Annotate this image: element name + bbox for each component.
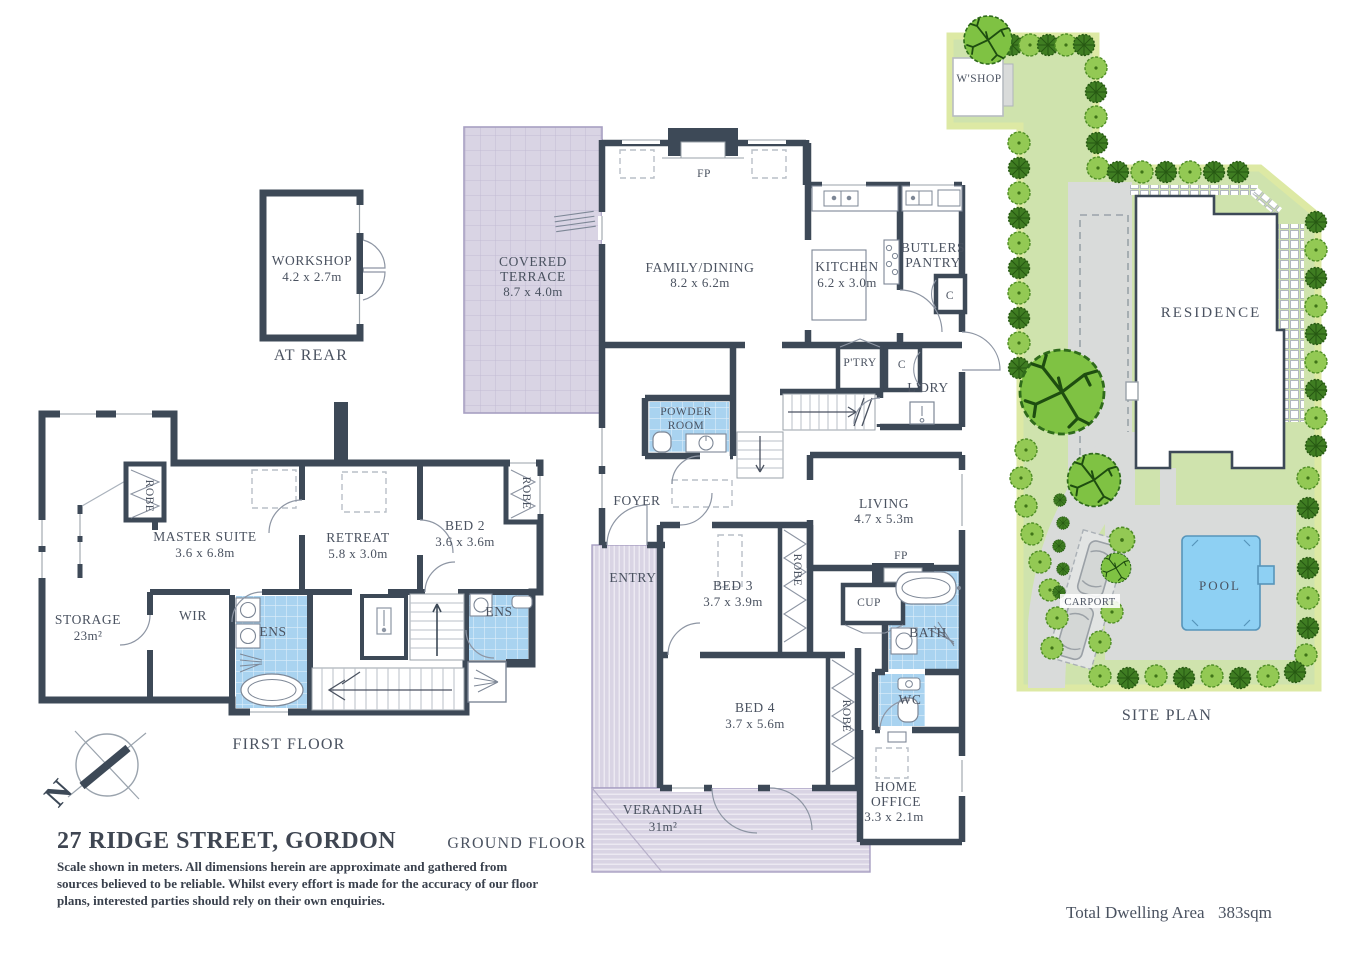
retreat-label: RETREAT <box>326 530 390 545</box>
powder-room-label: POWDER <box>660 406 712 418</box>
master-suite-dims: 3.6 x 6.8m <box>175 545 235 560</box>
big-tree-icon <box>1020 350 1104 434</box>
residence-label: RESIDENCE <box>1161 305 1262 321</box>
big-tree-icon <box>1068 454 1121 507</box>
floorplan-page: W'SHOP RESIDENCE POOL CARPORT SITE PLAN … <box>0 0 1358 960</box>
verandah-deck <box>592 788 870 872</box>
bed4-label: BED 4 <box>735 700 775 715</box>
butlers-fixtures <box>902 186 962 211</box>
disclaimer-line3: plans, interested parties should rely on… <box>57 893 385 908</box>
at-rear-label: AT REAR <box>274 347 348 364</box>
residence-outline <box>1136 196 1284 468</box>
entry-label: ENTRY <box>609 570 656 585</box>
disclaimer-line2: sources believed to be reliable. Whilst … <box>57 876 538 891</box>
first-floor-label: FIRST FLOOR <box>233 736 346 753</box>
master-suite-label: MASTER SUITE <box>153 529 257 544</box>
cupboard-label: C <box>946 290 954 302</box>
cup-label: CUP <box>857 597 881 609</box>
pool-label: POOL <box>1199 578 1241 593</box>
bed4-dims: 3.7 x 5.6m <box>725 716 785 731</box>
workshop-label: WORKSHOP <box>272 253 353 268</box>
workshop-plan: WORKSHOP 4.2 x 2.7m AT REAR <box>263 193 385 364</box>
workshop-dims: 4.2 x 2.7m <box>282 269 342 284</box>
cupboard-label: C <box>898 359 906 371</box>
site-front-path <box>1160 468 1176 508</box>
retreat-dims: 5.8 x 3.0m <box>328 546 388 561</box>
total-area-value: 383sqm <box>1218 903 1272 922</box>
wc-label: WC <box>899 692 922 707</box>
verandah-dims: 31m² <box>649 819 678 834</box>
covered-terrace-dims: 8.7 x 4.0m <box>503 284 563 299</box>
wshop-label: W'SHOP <box>956 73 1001 85</box>
storage-label: STORAGE <box>55 612 121 627</box>
compass: N <box>37 731 146 813</box>
kitchen-dims: 6.2 x 3.0m <box>817 275 877 290</box>
wir-label: WIR <box>179 608 207 623</box>
wall-stub <box>334 402 348 460</box>
home-office-dims: 3.3 x 2.1m <box>864 809 924 824</box>
stairs-upper-flight <box>410 594 464 660</box>
ground-floor-label: GROUND FLOOR <box>447 835 586 852</box>
powder-room-label2: ROOM <box>668 420 705 432</box>
page-title: 27 RIDGE STREET, GORDON <box>57 828 396 854</box>
fp-label: FP <box>894 550 908 562</box>
site-plan: W'SHOP RESIDENCE POOL CARPORT SITE PLAN <box>950 16 1327 724</box>
covered-terrace-label: COVERED <box>499 254 567 269</box>
fireplace-family <box>662 128 744 158</box>
disclaimer-line1: Scale shown in meters. All dimensions he… <box>57 859 507 874</box>
robe-label: ROBE <box>791 554 803 587</box>
bed3-label: BED 3 <box>713 578 753 593</box>
carport-label: CARPORT <box>1064 597 1115 608</box>
home-office-label2: OFFICE <box>871 794 921 809</box>
storage-dims: 23m² <box>74 628 103 643</box>
linen-closet <box>362 596 406 658</box>
living-label: LIVING <box>859 496 909 511</box>
fp-label: FP <box>697 168 711 180</box>
big-tree-icon <box>964 16 1012 64</box>
butlers-pantry-label: BUTLERS <box>901 240 965 255</box>
bed2-label: BED 2 <box>445 518 485 533</box>
bed2-dims: 3.6 x 3.6m <box>435 534 495 549</box>
paver-row <box>1130 185 1258 195</box>
verandah-label: VERANDAH <box>623 802 704 817</box>
foyer-label: FOYER <box>613 493 660 508</box>
kitchen-label: KITCHEN <box>815 259 878 274</box>
site-plan-label: SITE PLAN <box>1122 707 1212 724</box>
compass-north-label: N <box>37 772 79 813</box>
tree-row-top <box>1002 34 1095 56</box>
bed3-dims: 3.7 x 3.9m <box>703 594 763 609</box>
family-dining-label: FAMILY/DINING <box>646 260 755 275</box>
bath-label: BATH <box>909 625 947 640</box>
covered-terrace-label2: TERRACE <box>500 269 566 284</box>
robe-label: ROBE <box>840 700 852 733</box>
first-floor-plan: ROBE MASTER SUITE 3.6 x 6.8m RETREAT 5.8… <box>38 402 544 753</box>
double-door-arc <box>363 240 385 300</box>
living-dims: 4.7 x 5.3m <box>854 511 914 526</box>
family-dining-dims: 8.2 x 6.2m <box>670 275 730 290</box>
robe-label: ROBE <box>520 477 532 510</box>
powder-fixtures <box>653 432 726 452</box>
pantry-label: P'TRY <box>843 357 877 369</box>
ens-label: ENS <box>485 604 512 619</box>
residence-door <box>1126 382 1138 400</box>
total-area-label: Total Dwelling Area <box>1066 903 1205 922</box>
butlers-pantry-label2: PANTRY <box>905 255 961 270</box>
robe-label: ROBE <box>143 480 155 513</box>
stairs-lower-flight <box>312 668 464 710</box>
floorplan-canvas: W'SHOP RESIDENCE POOL CARPORT SITE PLAN … <box>0 0 1358 960</box>
home-office-cabinet <box>888 732 906 742</box>
ens-label: ENS <box>259 624 286 639</box>
laundry-label: L'DRY <box>907 380 948 395</box>
home-office-label: HOME <box>875 779 917 794</box>
